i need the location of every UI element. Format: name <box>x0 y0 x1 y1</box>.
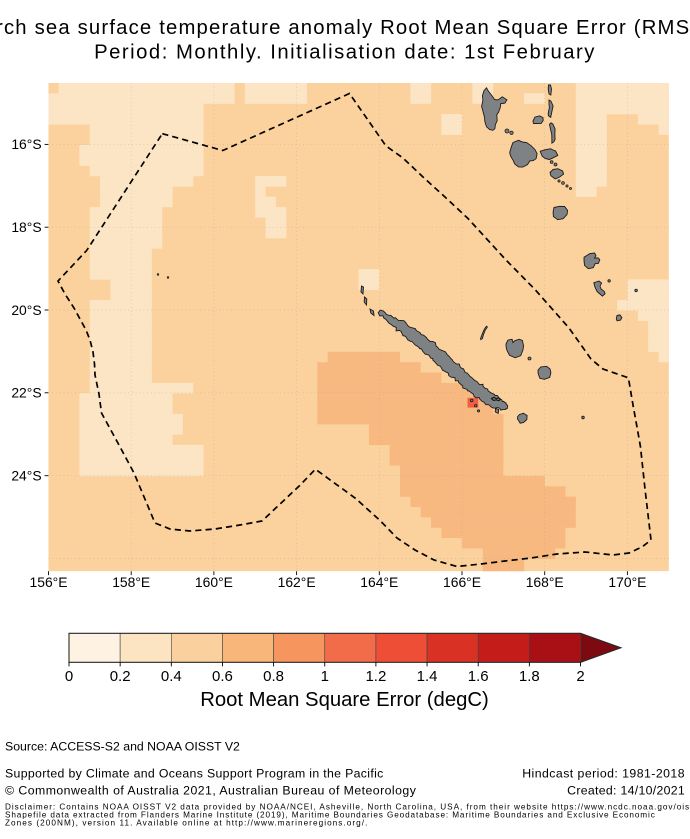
svg-text:168°E: 168°E <box>526 574 564 590</box>
svg-text:166°E: 166°E <box>443 574 481 590</box>
svg-text:© Commonwealth of Australia 20: © Commonwealth of Australia 2021, Austra… <box>5 784 417 798</box>
svg-text:2: 2 <box>576 668 584 685</box>
svg-text:Zones (200NM), version 11. Ava: Zones (200NM), version 11. Available onl… <box>5 819 368 828</box>
svg-text:1.8: 1.8 <box>519 668 540 685</box>
svg-text:1.4: 1.4 <box>417 668 438 685</box>
svg-text:Supported by Climate and Ocean: Supported by Climate and Oceans Support … <box>5 767 384 781</box>
svg-text:164°E: 164°E <box>360 574 398 590</box>
svg-text:0.4: 0.4 <box>161 668 182 685</box>
svg-text:18°S: 18°S <box>11 219 41 235</box>
svg-text:Period: Monthly. Initialisatio: Period: Monthly. Initialisation date: 1s… <box>94 42 596 64</box>
svg-text:0: 0 <box>65 668 73 685</box>
svg-text:Created: 14/10/2021: Created: 14/10/2021 <box>567 784 685 798</box>
svg-text:16°S: 16°S <box>11 136 41 152</box>
svg-text:24°S: 24°S <box>11 468 41 484</box>
svg-text:1: 1 <box>321 668 329 685</box>
svg-text:0.6: 0.6 <box>212 668 233 685</box>
svg-text:20°S: 20°S <box>11 302 41 318</box>
svg-text:162°E: 162°E <box>278 574 316 590</box>
svg-text:Root Mean Square Error (degC): Root Mean Square Error (degC) <box>200 689 489 711</box>
svg-text:Hindcast period: 1981-2018: Hindcast period: 1981-2018 <box>522 767 685 781</box>
svg-text:0.8: 0.8 <box>263 668 284 685</box>
svg-text:1.2: 1.2 <box>365 668 386 685</box>
svg-text:22°S: 22°S <box>11 385 41 401</box>
svg-text:1.6: 1.6 <box>468 668 489 685</box>
svg-text:March sea surface temperature: March sea surface temperature anomaly Ro… <box>0 17 690 39</box>
svg-text:156°E: 156°E <box>30 574 68 590</box>
svg-text:160°E: 160°E <box>195 574 233 590</box>
svg-text:170°E: 170°E <box>608 574 646 590</box>
svg-text:Source: ACCESS-S2 and NOAA OIS: Source: ACCESS-S2 and NOAA OISST V2 <box>5 740 240 754</box>
svg-text:158°E: 158°E <box>112 574 150 590</box>
svg-text:0.2: 0.2 <box>110 668 131 685</box>
